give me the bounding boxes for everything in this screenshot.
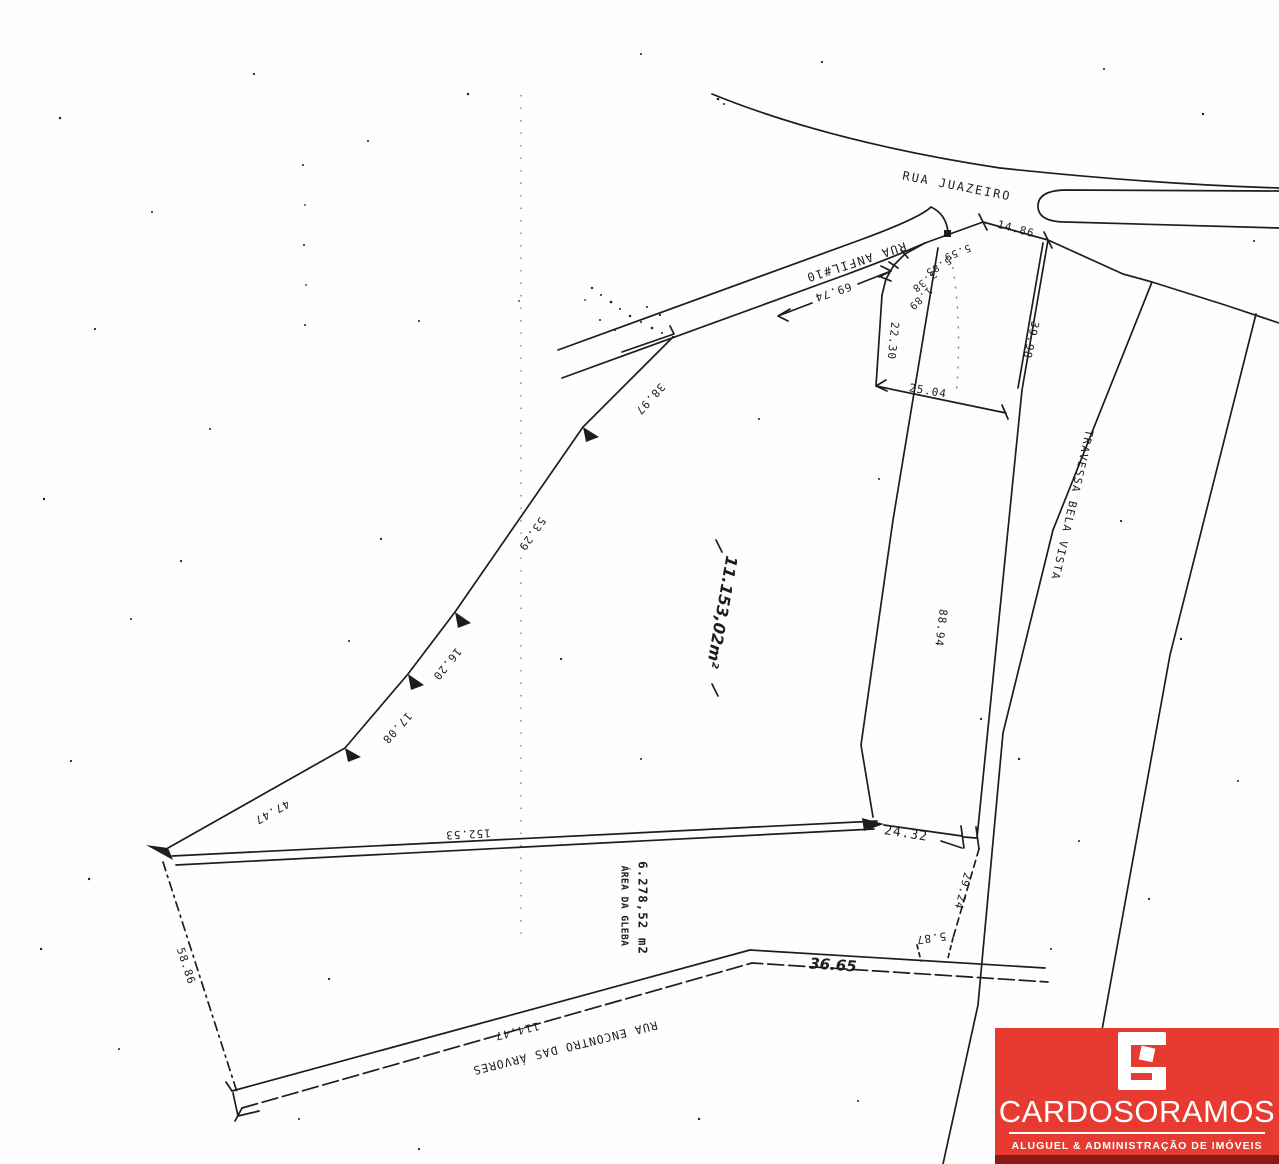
strip-east-line-double [1018, 243, 1043, 388]
road-juazeiro-north-edge [712, 94, 1279, 188]
agency-logo: CARDOSORAMOS ALUGUEL & ADMINISTRAÇÃO DE … [995, 1028, 1279, 1164]
road-juazeiro-median [1038, 190, 1279, 228]
area-label-gleba-title: ÁREA DA GLEBA [619, 866, 630, 947]
small-parcel-left [876, 295, 882, 386]
joint-flag-3 [408, 674, 424, 690]
parcel-frontage-edge [925, 222, 983, 243]
joint-flag-4 [345, 748, 361, 762]
boundary-southwest-dashdot [163, 862, 237, 1092]
area-label-gleba-value: 6.278,52 m2 [636, 861, 651, 955]
survey-marker-dot [944, 230, 951, 237]
agency-logo-underline [1009, 1132, 1265, 1134]
road-encontro-south-edge [242, 963, 1048, 1108]
road-encontro-north-edge [232, 950, 1045, 1091]
scan-noise-specks [40, 53, 1255, 1150]
boundary-west-chain [168, 338, 672, 848]
agency-logo-brand: CARDOSORAMOS [999, 1094, 1275, 1130]
erased-dotted-trail [951, 257, 959, 396]
scanned-survey-plan: RUA JUAZEIRO RUA ANFIL#10 TRAVESSA BELA … [0, 0, 1279, 1164]
agency-logo-footer-strip [995, 1155, 1279, 1164]
dimension-label-south-boundary: 152.53 [445, 826, 491, 841]
joint-flag-2 [455, 612, 471, 628]
agency-logo-icon [1118, 1032, 1166, 1090]
road-junction-corner [931, 207, 948, 232]
road-travessa-east-edge [1102, 314, 1256, 1030]
dimension-label-bottom-edge: 36.65 [809, 954, 858, 975]
boundary-step [622, 326, 674, 352]
agency-logo-tagline: ALUGUEL & ADMINISTRAÇÃO DE IMÓVEIS [995, 1140, 1279, 1152]
road-anfil-north-edge [558, 207, 931, 350]
plan-linework [0, 0, 1279, 1164]
boundary-south-double [172, 821, 877, 865]
joint-flag-1 [583, 427, 599, 442]
